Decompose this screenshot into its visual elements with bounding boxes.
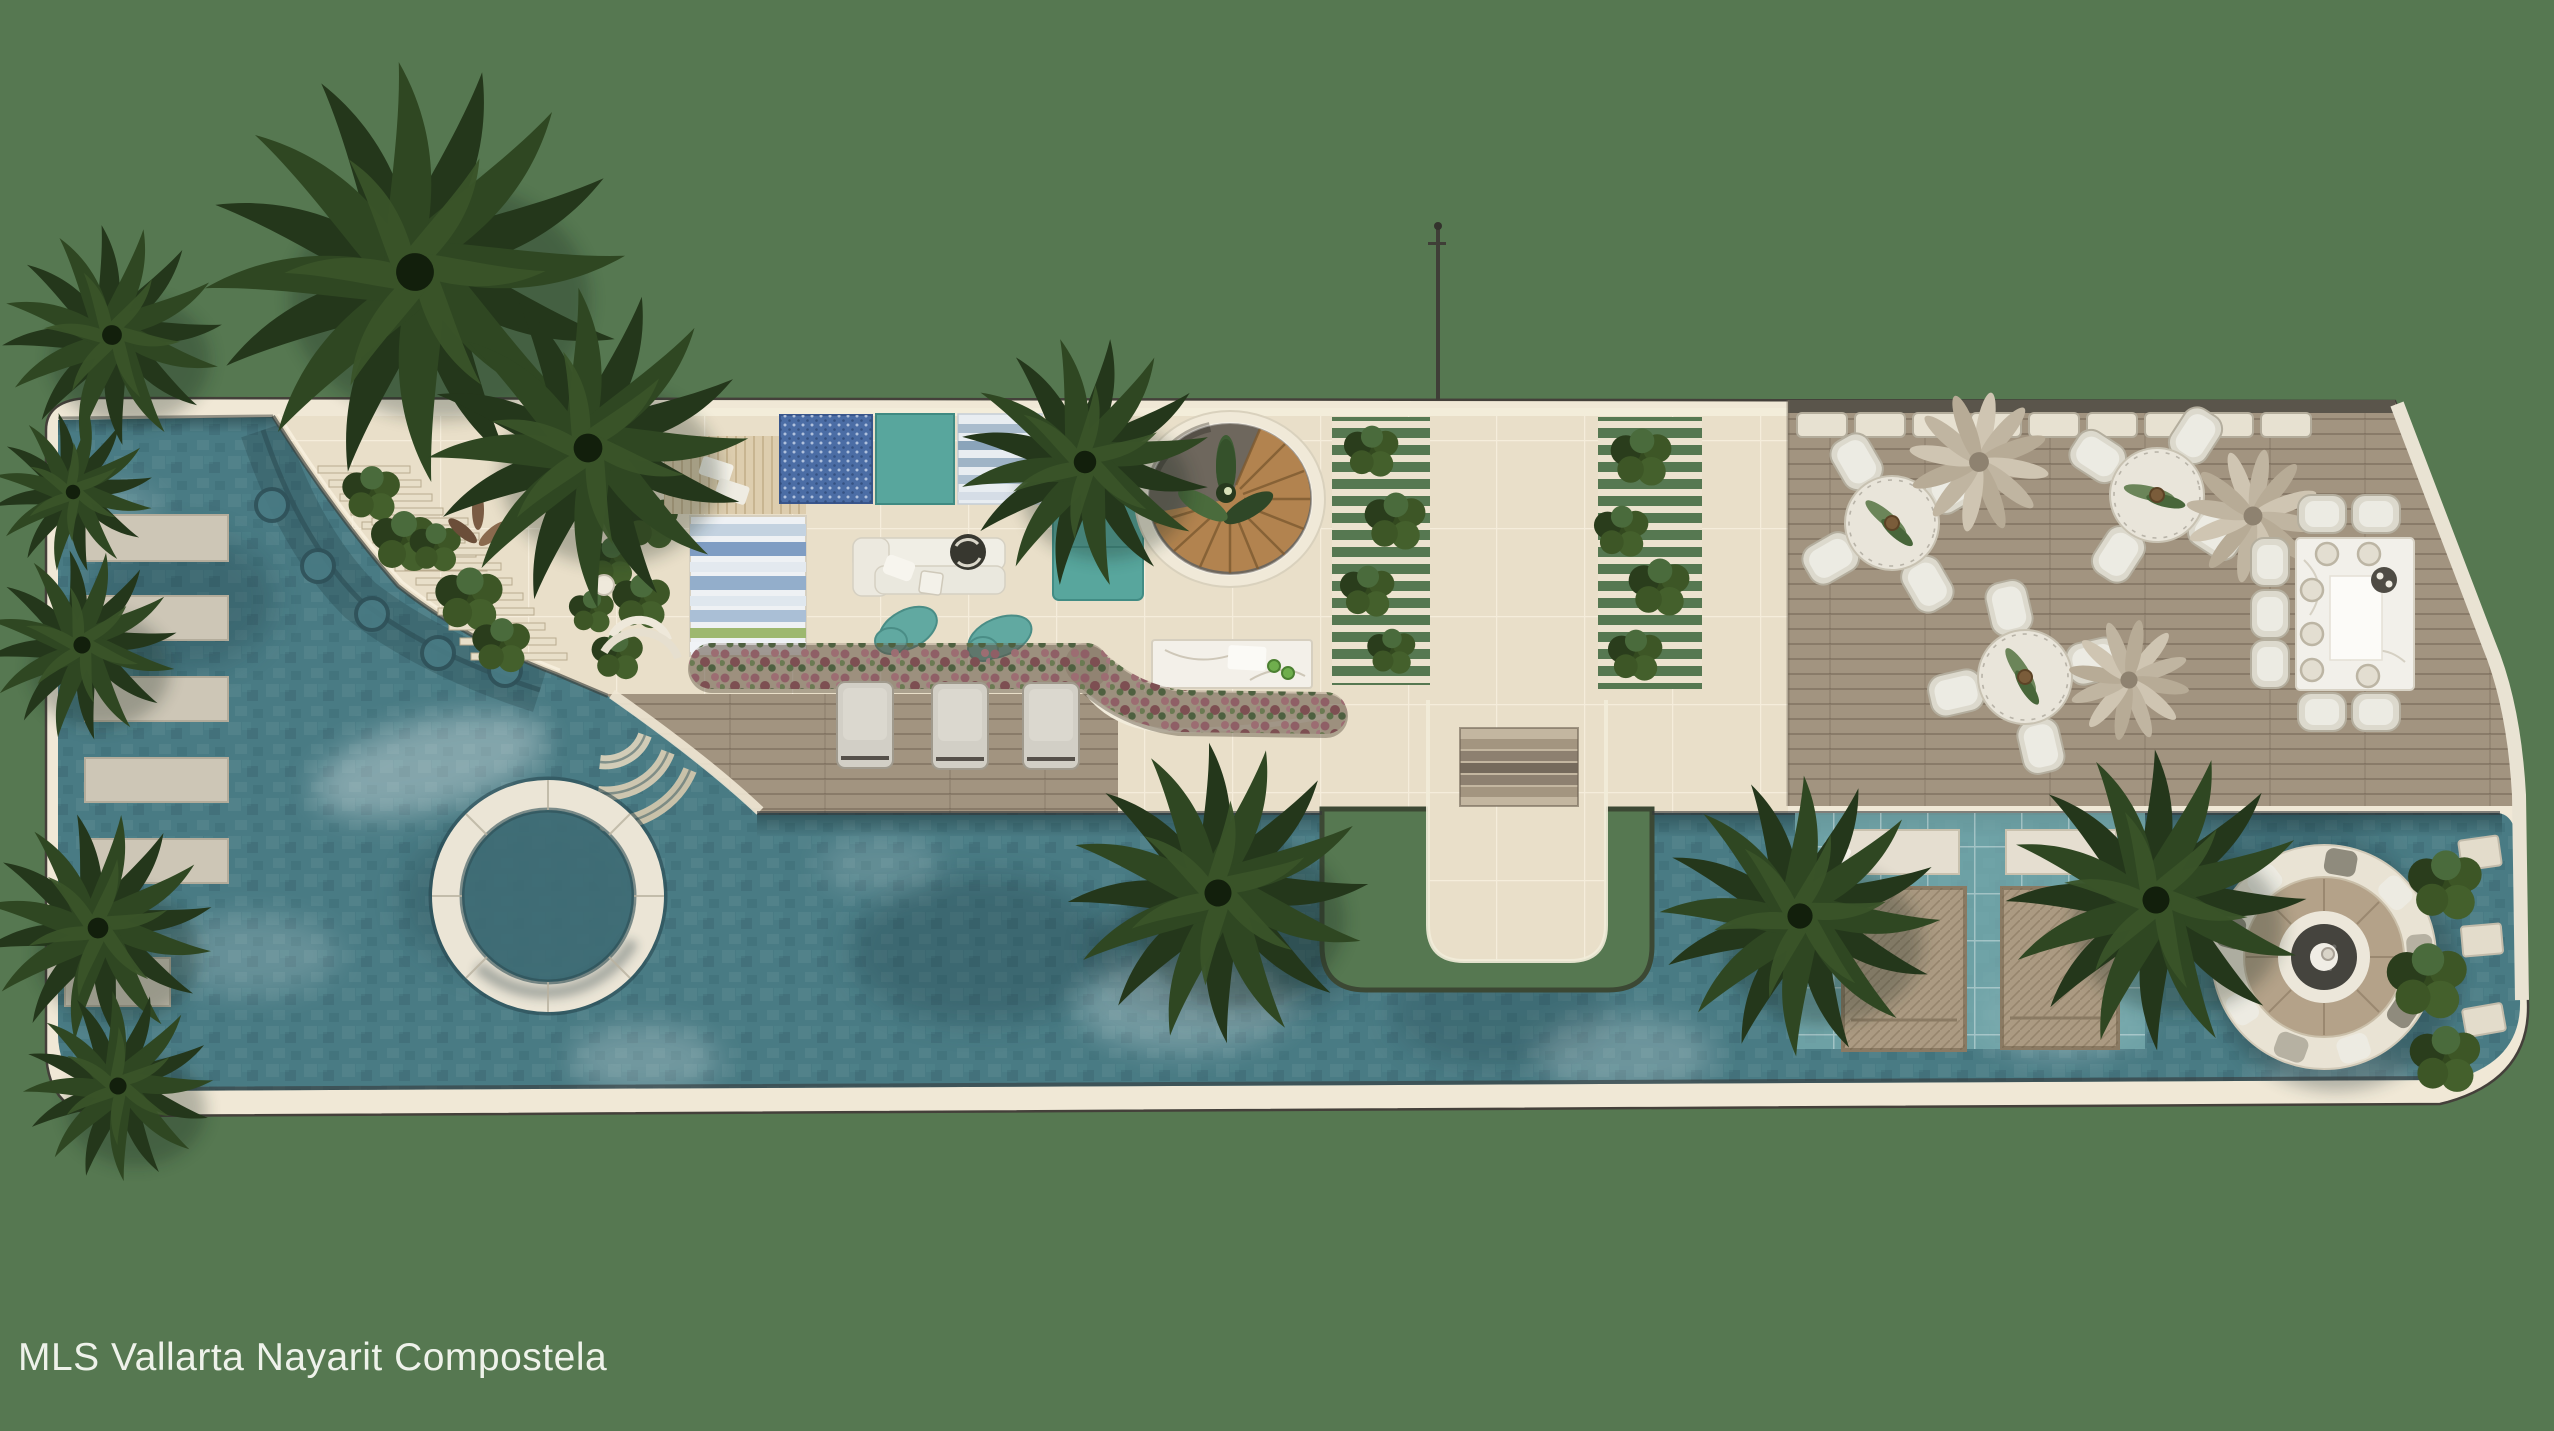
pergola-plant [1611,429,1672,486]
sofa-set [853,534,1005,596]
pergola-plant [1629,559,1690,616]
deck-bench-strip [1797,413,2311,437]
sun-loungers [837,682,1079,769]
watermark-text: MLS Vallarta Nayarit Compostela [18,1337,607,1380]
pergola-plant [1608,630,1662,681]
table-runner [2330,576,2382,660]
pergola-strip-left [1332,417,1430,685]
marble-bar-table [1152,640,1312,688]
drink-tray [2371,567,2397,593]
site-plan-render: MLS Vallarta Nayarit Compostela [0,0,2554,1431]
pergola-plant [1365,493,1426,550]
rug-row [780,414,1042,504]
parapet-wall [1788,400,2395,413]
plan-canvas [0,0,2554,1431]
pergola-plant [1340,566,1394,617]
pergola-plant [1594,506,1648,557]
pergola-plant [1344,426,1398,477]
drink-glass [1282,667,1294,679]
teal-rug [876,414,954,504]
striped-rug-vertical [690,516,806,656]
walkway-bridge [1428,416,1606,961]
spa-circle [431,779,665,1013]
walkway-steps [1460,728,1578,806]
cup [2322,948,2334,960]
drink-glass [1268,660,1280,672]
pergola-strip-right [1594,417,1702,689]
pergola-plant [1367,629,1415,674]
